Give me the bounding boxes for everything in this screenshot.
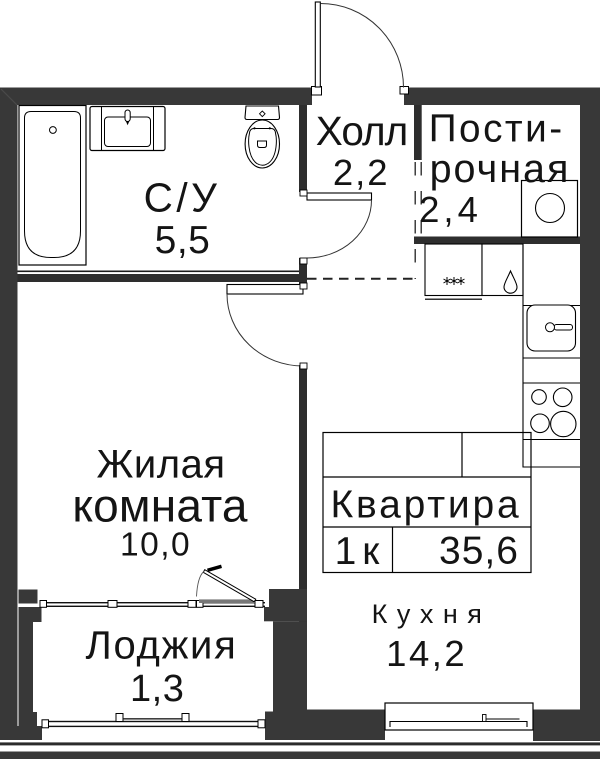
svg-text:Квартира: Квартира xyxy=(331,484,522,527)
svg-text:комната: комната xyxy=(72,480,248,532)
svg-text:Пости-: Пости- xyxy=(429,108,565,151)
svg-text:Холл: Холл xyxy=(316,108,407,154)
svg-text:10,0: 10,0 xyxy=(120,527,191,564)
svg-text:1,3: 1,3 xyxy=(130,668,184,710)
svg-text:5,5: 5,5 xyxy=(155,219,211,262)
svg-text:1к: 1к xyxy=(335,530,386,573)
svg-text:2,2: 2,2 xyxy=(333,152,390,193)
svg-text:С/У: С/У xyxy=(144,175,221,221)
svg-text:Лоджия: Лоджия xyxy=(86,624,238,668)
svg-text:14,2: 14,2 xyxy=(386,633,467,674)
svg-text:Кухня: Кухня xyxy=(372,599,492,629)
svg-text:35,6: 35,6 xyxy=(439,530,519,573)
svg-text:2,4: 2,4 xyxy=(419,189,482,230)
svg-text:рочная: рочная xyxy=(430,147,571,191)
